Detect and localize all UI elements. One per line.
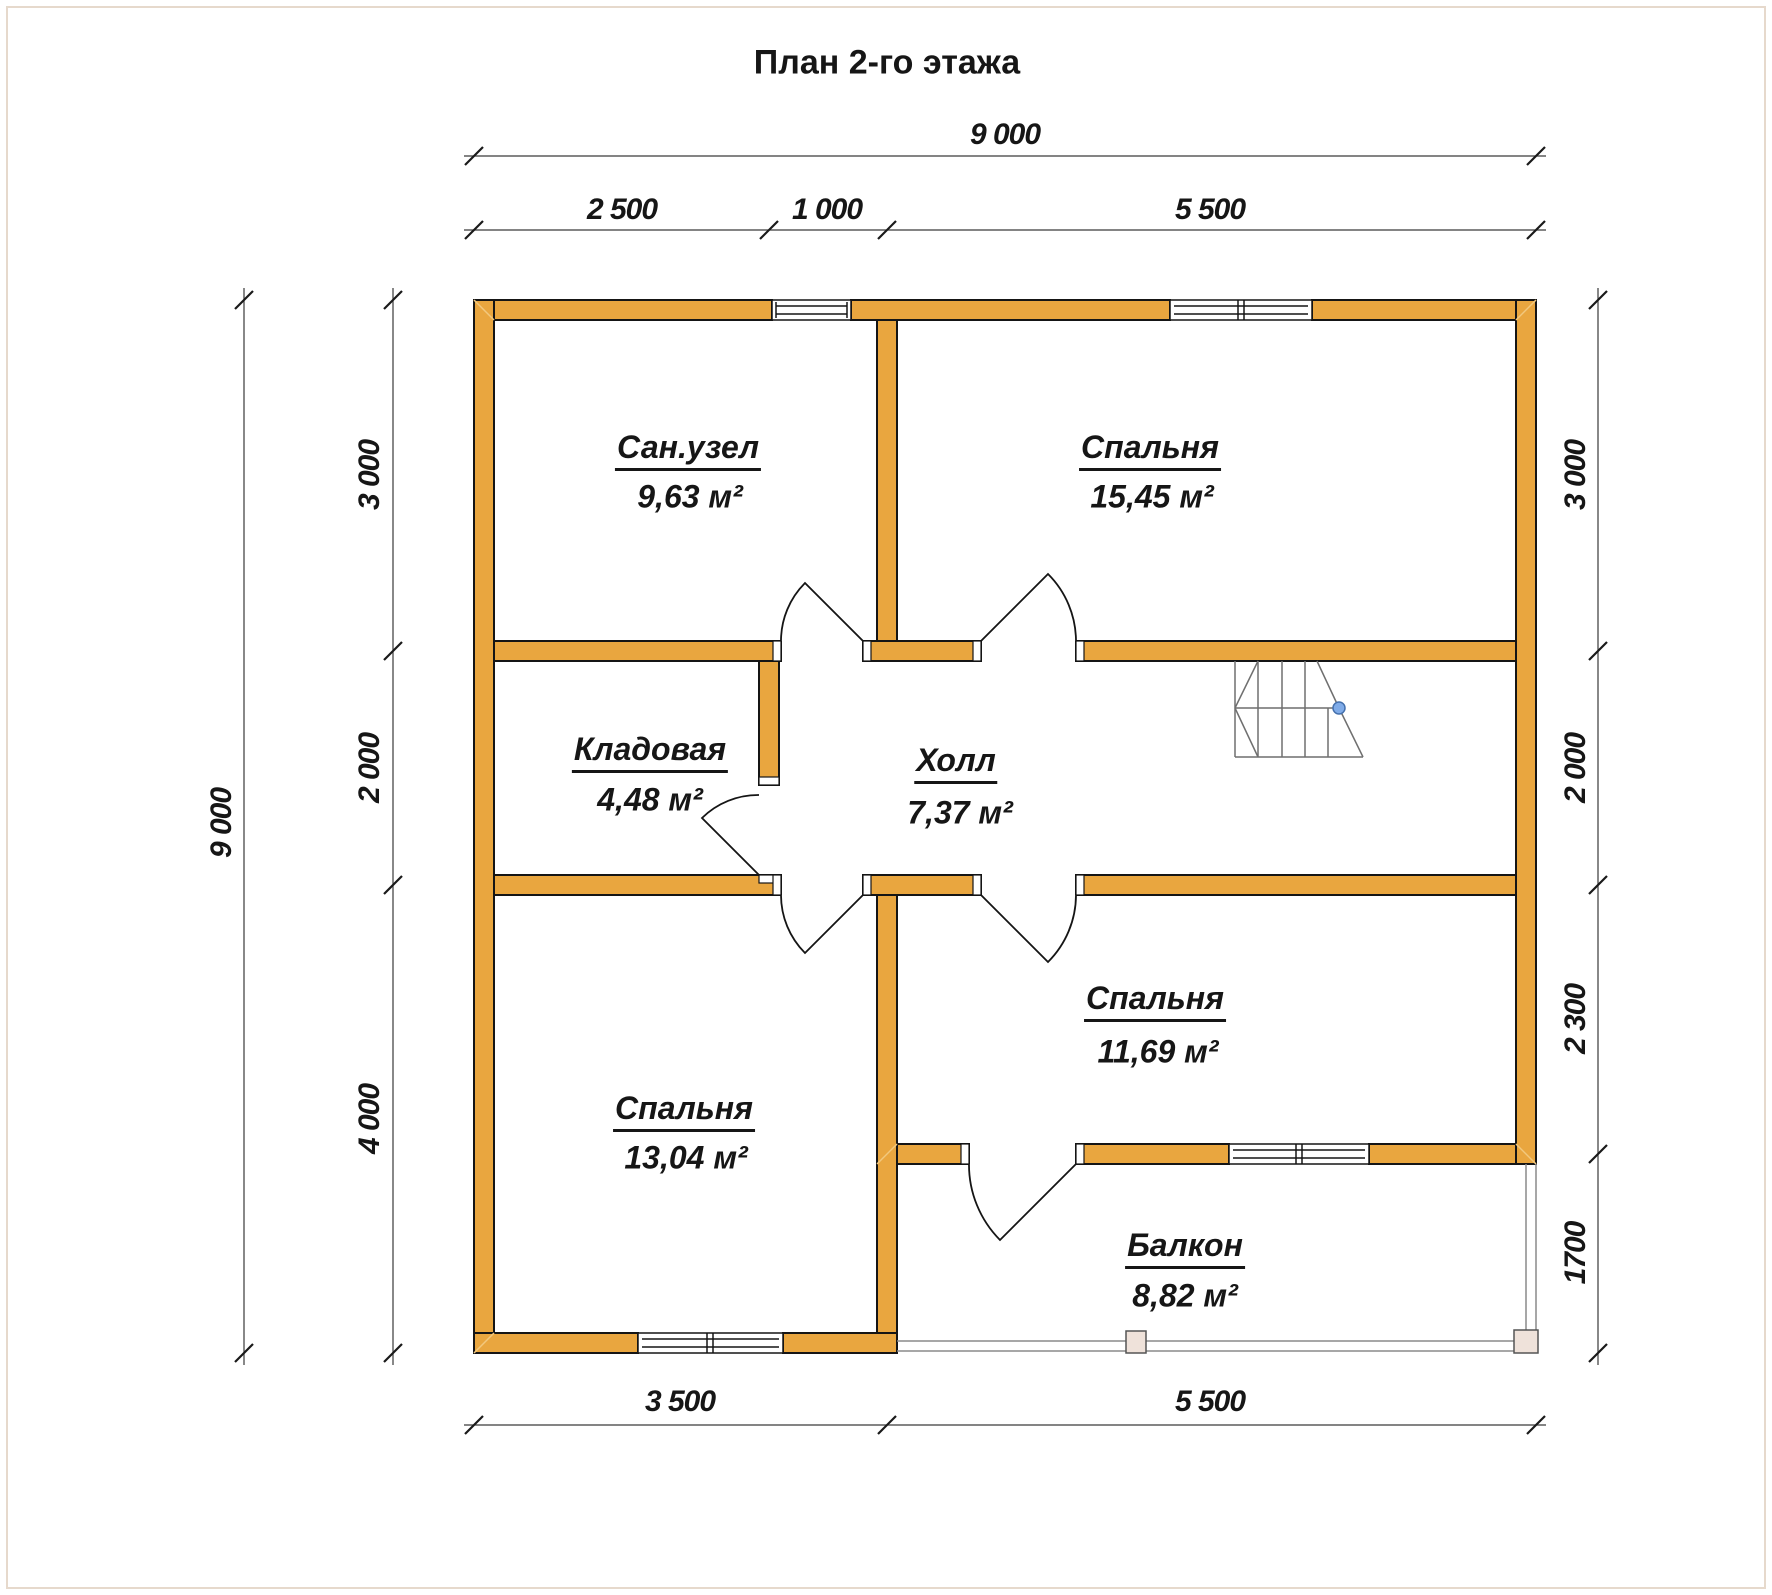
room-area-bedroom-11: 11,69 м² [1098,1034,1219,1071]
room-area-balcony: 8,82 м² [1132,1278,1238,1315]
blueprint-page: { "title": "План 2-го этажа", "dimension… [0,0,1772,1595]
dim-top-seg-3: 5 500 [1175,193,1245,227]
wall-balcony-b [1076,1144,1229,1164]
door-bathroom [781,583,863,641]
window-bedroom-15 [1170,300,1312,320]
room-area-bathroom: 9,63 м² [637,479,743,516]
door-storage [702,795,759,875]
dim-right-seg-1: 3 000 [1559,440,1593,510]
room-label-bedroom-15: Спальня [1079,429,1221,471]
window-bathroom [772,300,851,320]
dimension-ticks [235,147,1607,1434]
wall-divider-bottom-rooms [877,895,897,1333]
door-bedroom-13 [781,895,863,953]
wall-top-1 [474,300,772,320]
dim-top-total: 9 000 [970,118,1040,152]
wall-top-2 [851,300,1170,320]
door-balcony [969,1164,1076,1240]
wall-top-3 [1312,300,1536,320]
wall-h50-c [1076,875,1516,895]
room-area-bedroom-15: 15,45 м² [1090,479,1213,516]
room-label-bedroom-11: Спальня [1084,980,1226,1022]
floor-plan-drawing [0,0,1772,1595]
room-label-bathroom: Сан.узел [615,429,761,471]
room-label-storage: Кладовая [572,731,728,773]
wall-left [474,300,494,1353]
dim-bottom-seg-1: 3 500 [645,1385,715,1419]
stair-marker-dot [1333,702,1345,714]
dim-right-seg-4: 1700 [1559,1222,1593,1285]
wall-storage-right [759,661,779,785]
wall-balcony-a [897,1144,969,1164]
dim-left-seg-1: 3 000 [353,440,387,510]
window-bedroom-13 [638,1333,783,1353]
railing-post [1126,1331,1146,1353]
wall-balcony-c [1369,1144,1516,1164]
room-area-hall: 7,37 м² [907,795,1013,832]
room-area-bedroom-13: 13,04 м² [624,1140,747,1177]
room-label-hall: Холл [914,742,997,784]
dim-right-seg-3: 2 300 [1559,984,1593,1054]
stairs [1235,661,1363,757]
room-area-storage: 4,48 м² [597,782,703,819]
dimension-lines [244,156,1598,1425]
dim-right-seg-2: 2 000 [1559,733,1593,803]
wall-h30-b [863,641,981,661]
wall-bottom-2 [783,1333,897,1353]
wall-h50-a [494,875,781,895]
dim-left-total: 9 000 [205,788,239,858]
window-bedroom-11 [1229,1144,1369,1164]
wall-h50-b [863,875,981,895]
room-label-balcony: Балкон [1125,1227,1245,1269]
railing-corner-post [1514,1330,1538,1353]
wall-right [1516,300,1536,1164]
plan-title: План 2-го этажа [754,44,1020,83]
wall-divider-top-rooms [877,320,897,641]
room-label-bedroom-13: Спальня [613,1090,755,1132]
wall-h30-a [494,641,781,661]
dim-top-seg-1: 2 500 [587,193,657,227]
door-bedroom-11 [981,895,1076,962]
wall-h30-c [1076,641,1516,661]
dim-left-seg-3: 4 000 [353,1084,387,1154]
dim-bottom-seg-2: 5 500 [1175,1385,1245,1419]
door-bedroom-15 [981,574,1076,641]
dim-left-seg-2: 2 000 [353,733,387,803]
dim-top-seg-2: 1 000 [792,193,862,227]
wall-bottom-1 [474,1333,638,1353]
